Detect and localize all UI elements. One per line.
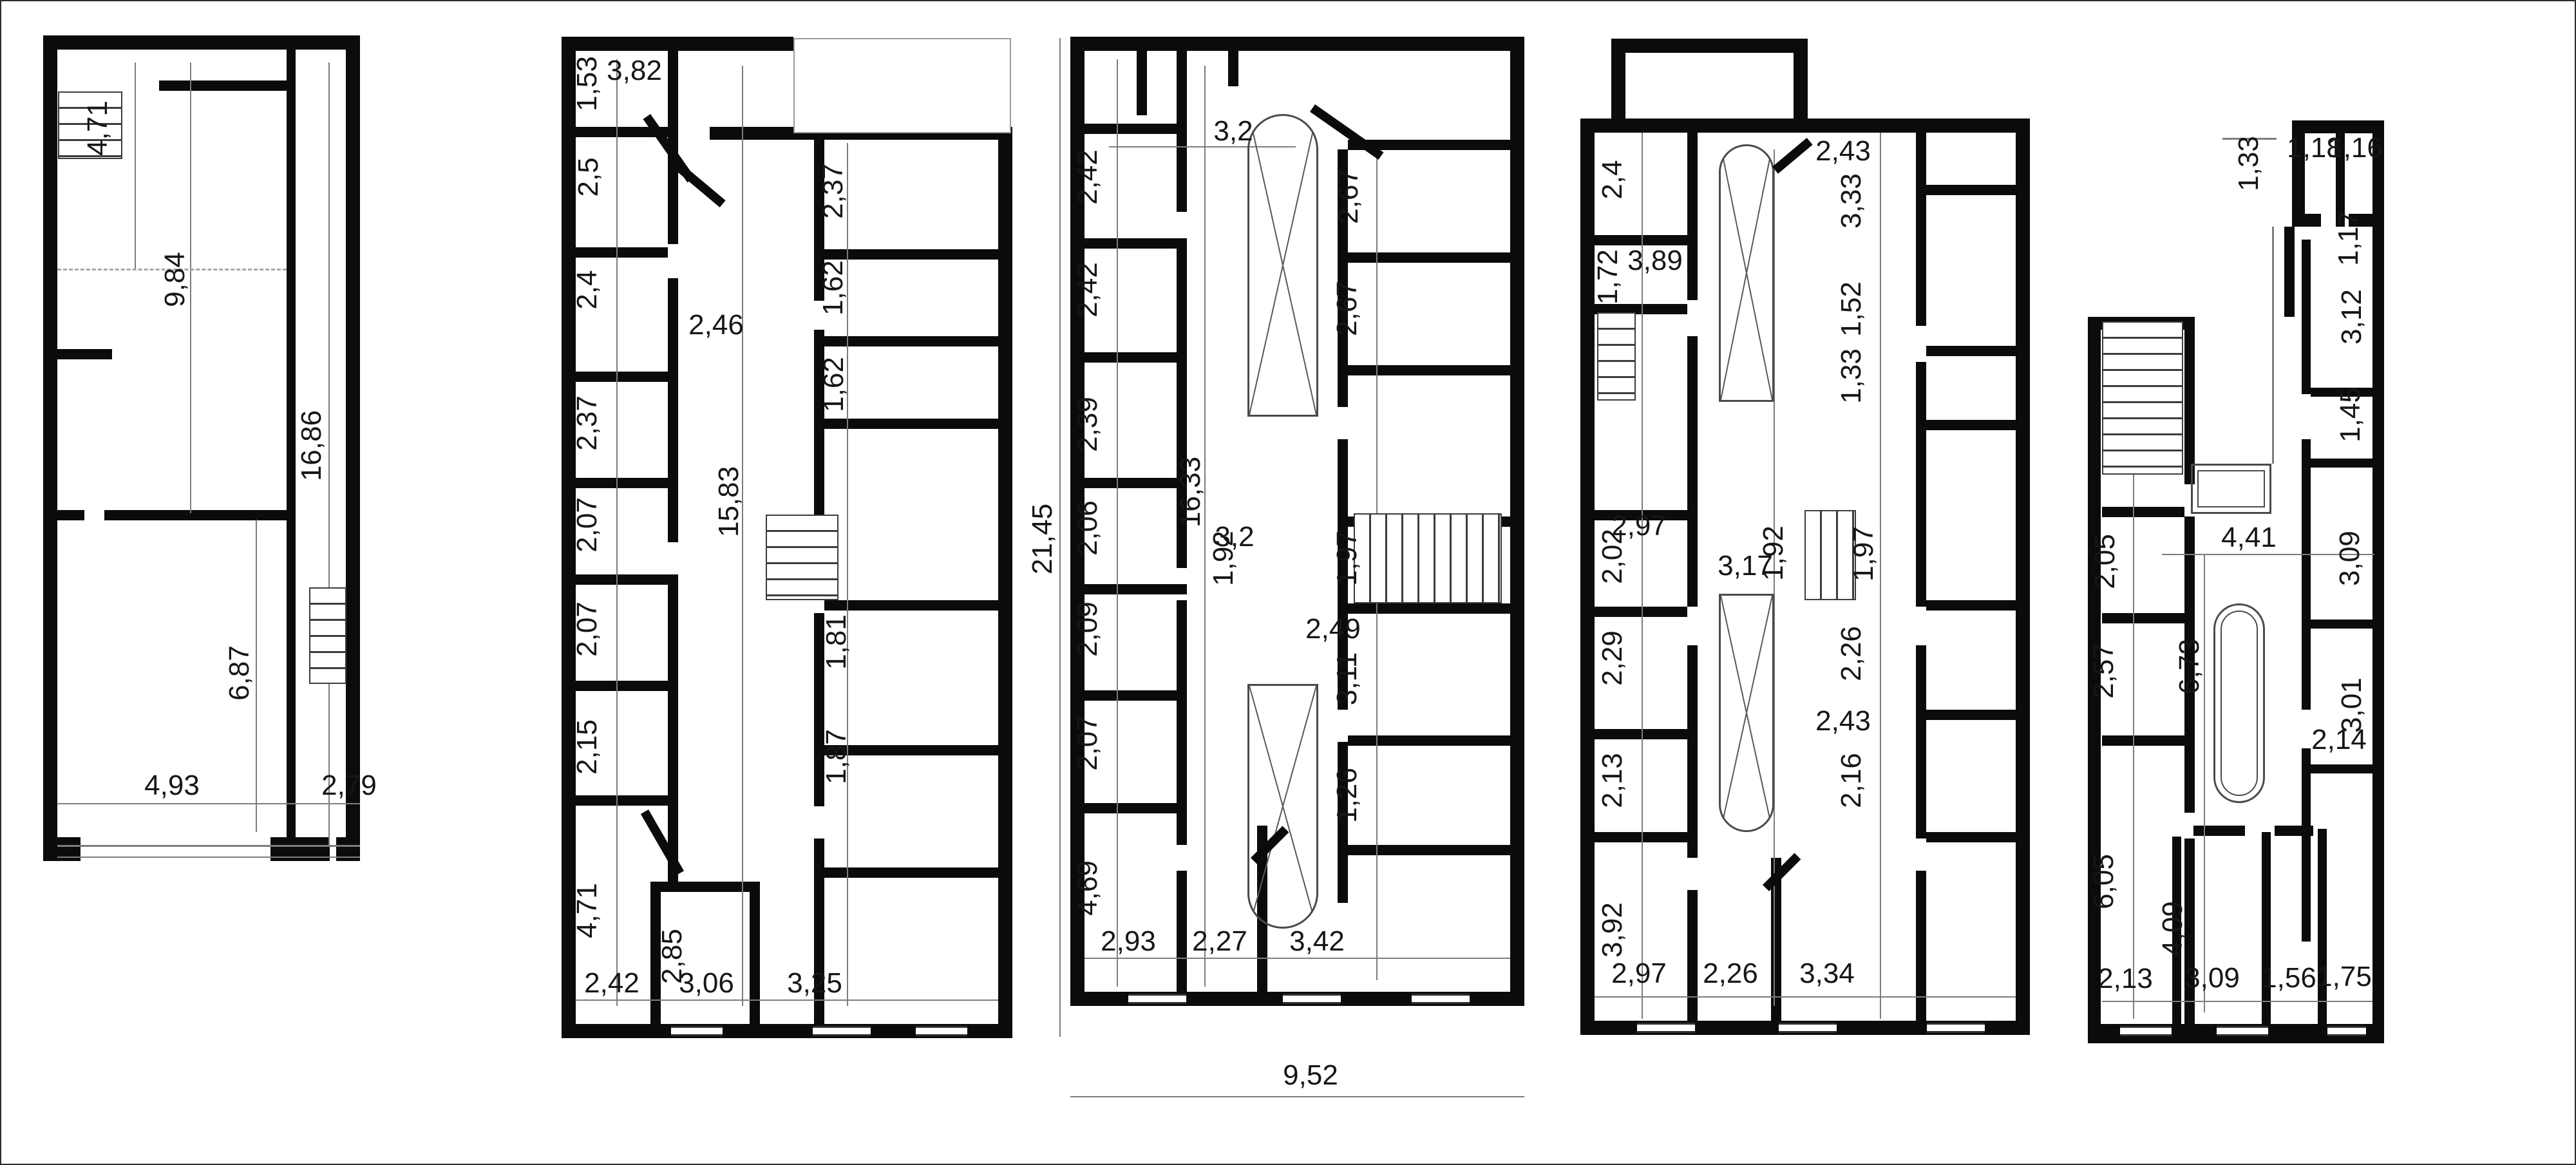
wall-segment	[2311, 459, 2382, 468]
wall-segment	[2292, 214, 2321, 227]
window-symbol	[2217, 1026, 2268, 1036]
wall-segment	[2311, 764, 2382, 773]
window-symbol	[2327, 1026, 2366, 1036]
wall-segment	[2184, 317, 2195, 484]
dimension-line	[2102, 1001, 2372, 1002]
wall-segment	[2102, 507, 2184, 517]
dimension-label: 6,05	[2090, 854, 2118, 909]
wall-segment	[2302, 748, 2311, 942]
dimension-label: 4,41	[2221, 524, 2277, 552]
void-oval-symbol	[2213, 603, 2265, 803]
floor-plan-5: 1,331,181,161,173,121,452,052,574,416,73…	[1, 1, 2575, 1164]
wall-segment	[2292, 120, 2384, 133]
dimension-label: 6,73	[2175, 639, 2204, 694]
wall-segment	[2372, 227, 2384, 1043]
wall-segment	[2311, 620, 2382, 629]
dimension-label: 1,45	[2336, 387, 2365, 442]
wall-segment	[2318, 829, 2327, 1024]
wall-segment	[2262, 832, 2271, 1024]
wall-segment	[2193, 826, 2245, 836]
dimension-label: 1,33	[2235, 136, 2263, 191]
dimension-label: 3,09	[2336, 531, 2364, 586]
dimension-label: 1,17	[2334, 211, 2363, 266]
dimension-label: 2,05	[2091, 534, 2119, 589]
dimension-label: 3,12	[2338, 289, 2366, 345]
dimension-label: 3,09	[2184, 964, 2240, 992]
floor-plans-canvas: 4,719,8416,866,874,932,79 1,533,822,52,4…	[0, 0, 2576, 1165]
dimension-label: 2,13	[2098, 965, 2153, 993]
elevator-symbol	[2191, 464, 2271, 514]
wall-segment	[2302, 439, 2311, 710]
dimension-line	[2204, 555, 2205, 1012]
wall-segment	[2284, 227, 2295, 317]
dimension-label: 2,57	[2090, 643, 2118, 699]
dimension-line	[2272, 227, 2274, 464]
dimension-label: 1,16	[2327, 134, 2383, 162]
dimension-label: 2,14	[2311, 726, 2367, 754]
wall-segment	[2302, 240, 2311, 394]
dimension-label: 1,56	[2261, 964, 2316, 992]
window-symbol	[2120, 1026, 2172, 1036]
dimension-label: 1,75	[2316, 963, 2372, 991]
wall-segment	[2102, 735, 2184, 746]
wall-segment	[2275, 826, 2313, 836]
stairs-symbol	[2102, 321, 2183, 475]
dimension-label: 4,09	[2159, 901, 2187, 956]
wall-segment	[2102, 613, 2184, 623]
